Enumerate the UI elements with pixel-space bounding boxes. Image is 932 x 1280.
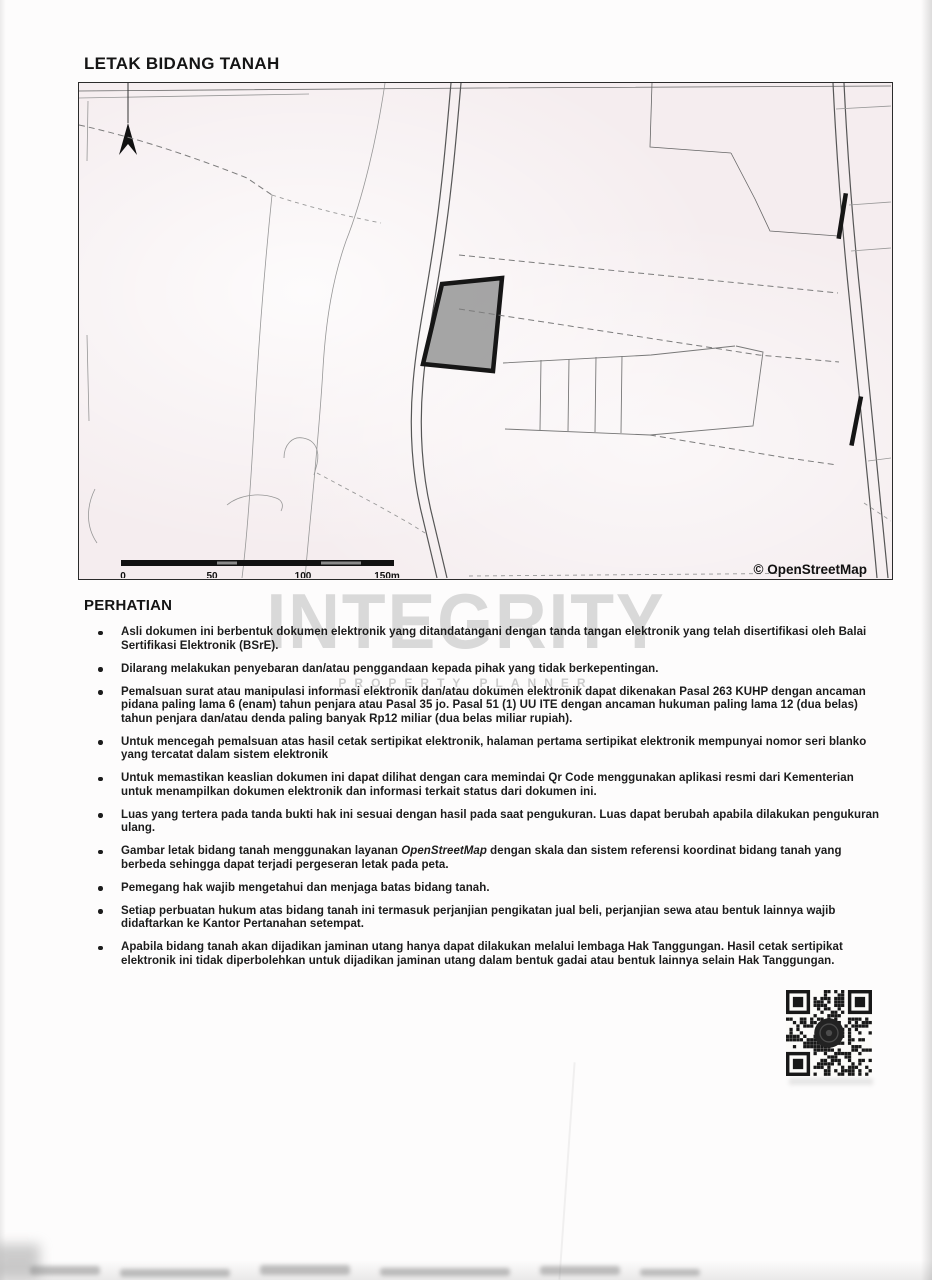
map-paths-bottom-left bbox=[88, 438, 839, 576]
scan-crease bbox=[558, 1062, 575, 1280]
scan-smudge bbox=[540, 1266, 620, 1275]
map-drawing: 0 50 100 150m © OpenStreetMap bbox=[79, 83, 891, 578]
parcel-location-map: 0 50 100 150m © OpenStreetMap bbox=[78, 82, 893, 580]
scan-smudge bbox=[120, 1269, 230, 1277]
north-arrow-icon bbox=[119, 83, 137, 155]
scan-smudge bbox=[640, 1269, 700, 1276]
notice-bullet-7: Gambar letak bidang tanah menggunakan la… bbox=[84, 845, 886, 872]
scale-tick-100: 100 bbox=[295, 571, 312, 578]
notice-bullet-6: Luas yang tertera pada tanda bukti hak i… bbox=[84, 809, 886, 836]
road-name-mark bbox=[836, 193, 848, 239]
map-boundary-upper-right bbox=[650, 83, 838, 236]
scale-bar: 0 50 100 150m bbox=[120, 560, 400, 578]
notice-bullet-9: Setiap perbuatan hukum atas bidang tanah… bbox=[84, 905, 886, 932]
scan-smudge bbox=[260, 1265, 350, 1275]
notice-bullet-5: Untuk memastikan keaslian dokumen ini da… bbox=[84, 772, 886, 799]
notice-bullet-1: Asli dokumen ini berbentuk dokumen elekt… bbox=[84, 626, 886, 653]
scan-edge-left bbox=[0, 0, 6, 1280]
bullet-7-pre: Gambar letak bidang tanah menggunakan la… bbox=[121, 845, 401, 857]
road-name-mark bbox=[849, 396, 863, 446]
notice-bullet-3: Pemalsuan surat atau manipulasi informas… bbox=[84, 686, 886, 727]
scale-tick-50: 50 bbox=[206, 571, 218, 578]
side-road-right bbox=[833, 83, 891, 578]
parcel-grid bbox=[459, 255, 839, 465]
notice-bullet-10: Apabila bidang tanah akan dijadikan jami… bbox=[84, 941, 886, 968]
land-parcel-highlight bbox=[423, 278, 502, 371]
notice-bullet-4: Untuk mencegah pemalsuan atas hasil ceta… bbox=[84, 736, 886, 763]
page-title: LETAK BIDANG TANAH bbox=[84, 54, 280, 74]
map-roads-top bbox=[79, 86, 891, 98]
map-attribution: © OpenStreetMap bbox=[754, 562, 867, 577]
scale-tick-0: 0 bbox=[120, 571, 126, 578]
notice-bullet-2: Dilarang melakukan penyebaran dan/atau p… bbox=[84, 663, 886, 677]
map-boundary-left bbox=[87, 83, 385, 578]
qr-shadow bbox=[789, 1078, 873, 1085]
qr-code bbox=[786, 990, 872, 1076]
scan-smudge bbox=[380, 1268, 510, 1276]
scan-smudge bbox=[30, 1266, 100, 1275]
notice-section: PERHATIAN Asli dokumen ini berbentuk dok… bbox=[84, 597, 886, 978]
scan-edge-right bbox=[921, 0, 932, 1280]
qr-code-svg bbox=[786, 990, 872, 1076]
notice-bullet-8: Pemegang hak wajib mengetahui dan menjag… bbox=[84, 882, 886, 896]
notice-heading: PERHATIAN bbox=[84, 597, 886, 614]
bullet-7-openstreetmap: OpenStreetMap bbox=[401, 845, 487, 857]
scale-tick-150m: 150m bbox=[374, 571, 400, 578]
